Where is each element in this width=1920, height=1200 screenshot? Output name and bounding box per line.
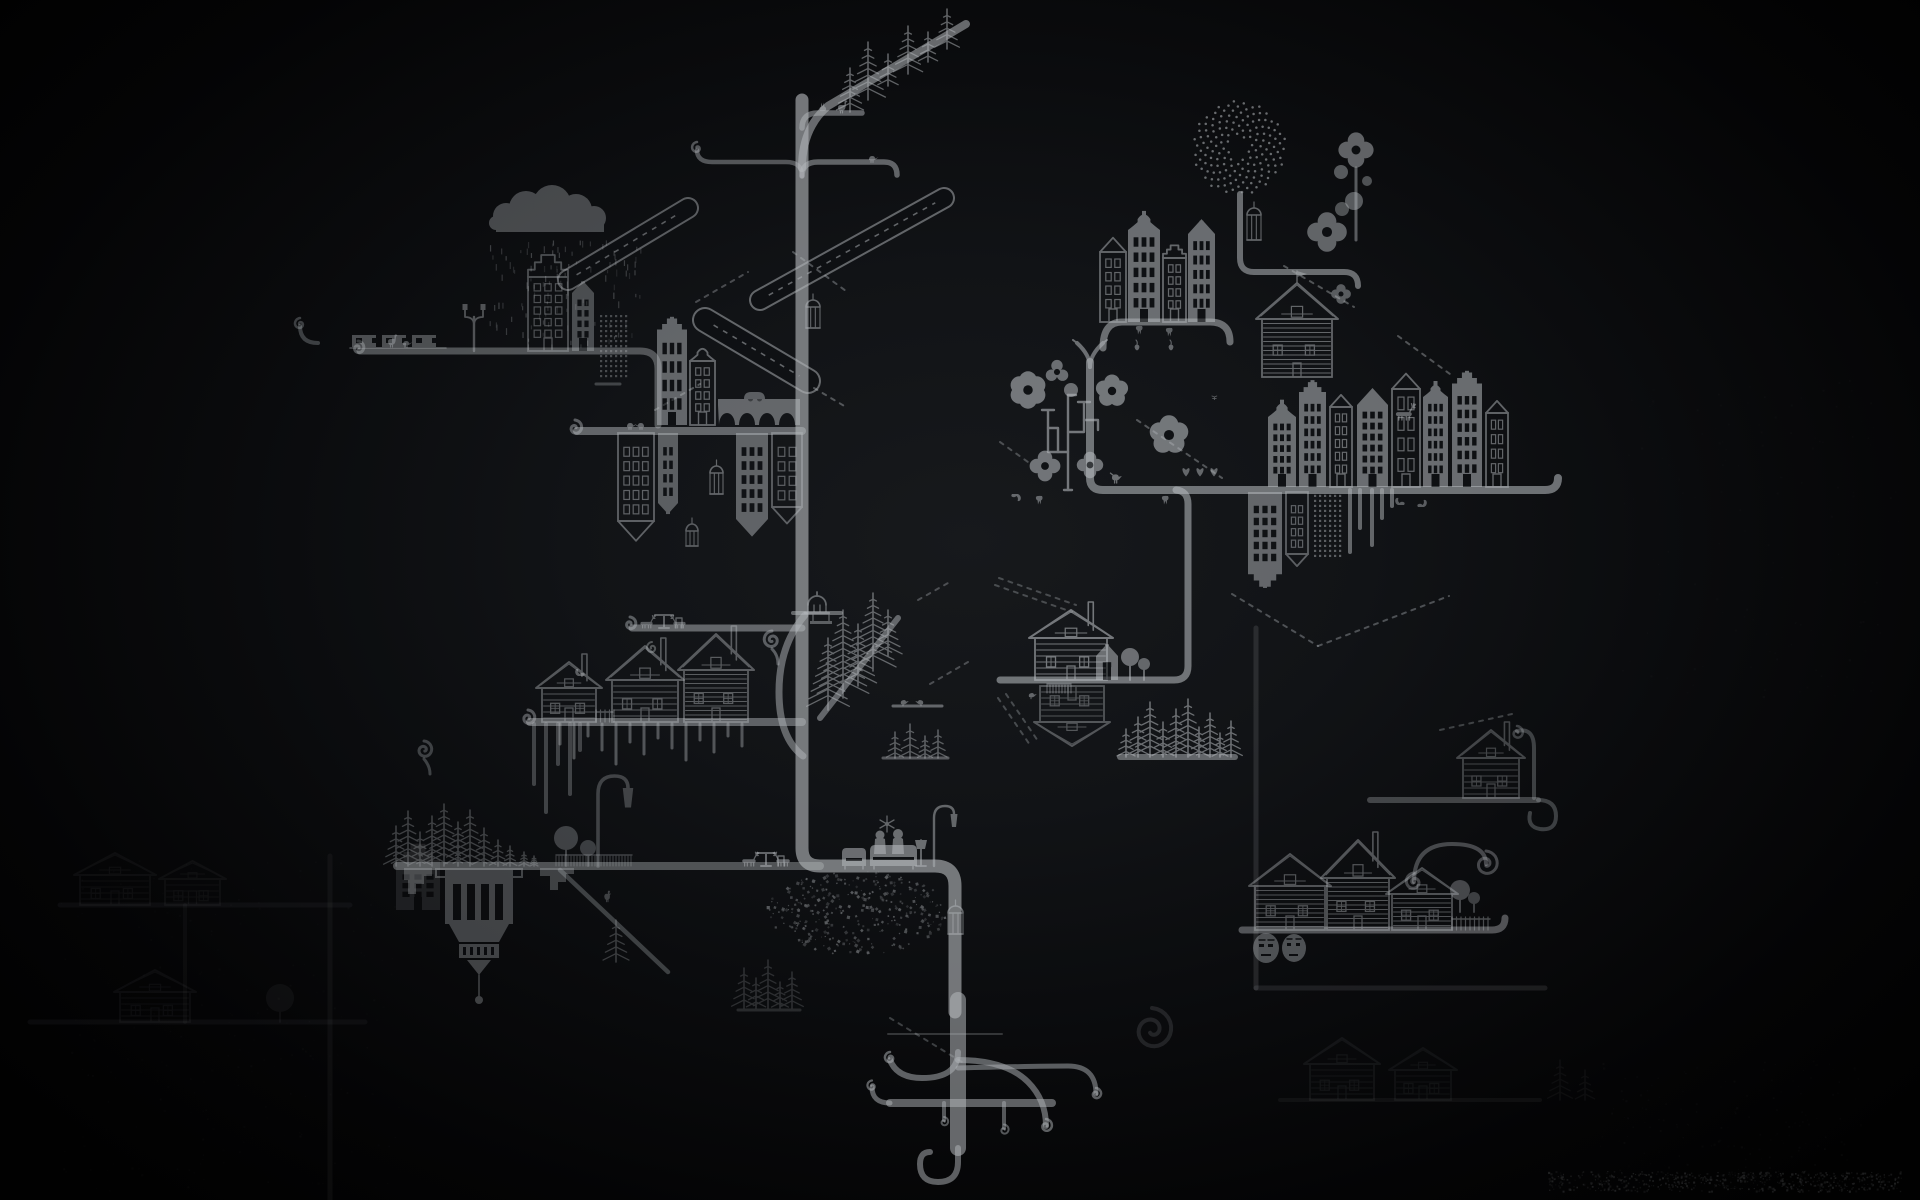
critter <box>604 891 611 902</box>
capsule-road <box>705 320 808 381</box>
flower <box>1338 132 1373 167</box>
pine <box>603 920 629 962</box>
path <box>697 150 802 176</box>
tall-canal-house <box>1486 401 1508 487</box>
pines <box>887 724 948 758</box>
dash <box>995 585 1072 612</box>
roundtree <box>1335 202 1349 216</box>
flower <box>1077 452 1103 478</box>
wallpaper-artwork <box>0 0 1920 1200</box>
chalet <box>536 654 602 722</box>
scroll <box>1414 844 1486 882</box>
dash <box>1318 596 1449 646</box>
flower <box>1307 212 1347 252</box>
critter <box>1135 340 1140 350</box>
rain-building <box>572 281 594 351</box>
roundtree <box>1450 880 1470 912</box>
bg-house <box>159 861 226 905</box>
bg-pines <box>1548 1060 1595 1100</box>
rain-cloud <box>489 185 606 232</box>
cloud-branch <box>360 351 658 425</box>
critter <box>1417 500 1426 507</box>
log-cabin <box>1256 271 1338 377</box>
spiral <box>419 741 432 756</box>
critter <box>1169 340 1174 350</box>
roundtree <box>1334 165 1348 179</box>
train <box>350 335 446 348</box>
lamppost <box>463 304 486 351</box>
branch-322 <box>1103 322 1230 348</box>
dotted-tower <box>600 315 627 377</box>
bg-texture <box>1600 1060 1862 1180</box>
capsule-road <box>760 198 944 300</box>
dash <box>1440 714 1512 730</box>
street-lamp <box>598 776 633 866</box>
critter <box>1136 326 1143 335</box>
path <box>1529 800 1556 829</box>
tall-canal-house <box>1452 371 1482 487</box>
dash <box>814 388 846 407</box>
path <box>300 326 318 343</box>
path <box>424 759 430 774</box>
canal-house <box>1163 245 1186 322</box>
watermark-smudge <box>1548 1171 1902 1193</box>
canal-house <box>1188 219 1215 322</box>
branch-ysplit <box>1073 340 1107 367</box>
aqueduct <box>718 399 800 425</box>
bg-house <box>1389 1048 1457 1100</box>
tall-canal-house <box>1268 400 1296 487</box>
dash <box>930 662 968 684</box>
tall-canal-house <box>1357 388 1388 487</box>
reflected-house <box>1034 686 1110 746</box>
chalet <box>606 638 684 722</box>
br-chalet <box>1386 868 1458 930</box>
tall-canal-house <box>1392 374 1420 487</box>
roundtree <box>1121 648 1139 680</box>
inverted-building <box>1286 492 1308 566</box>
dandelion-orb <box>1193 100 1286 193</box>
br-chalet <box>1249 854 1331 930</box>
island-pines <box>384 804 538 866</box>
dash <box>999 578 1076 605</box>
right-pine-forest <box>1117 699 1242 757</box>
path <box>802 162 897 176</box>
tall-canal-house <box>1299 380 1326 487</box>
island-diagonal <box>560 870 668 972</box>
chalet <box>678 626 754 722</box>
flower <box>1030 451 1061 482</box>
tall-canal-house <box>1423 381 1448 487</box>
drips <box>560 724 742 764</box>
rain-building <box>528 255 568 351</box>
critter <box>1110 473 1121 483</box>
critter <box>1212 396 1217 400</box>
dash <box>1000 442 1028 462</box>
roundtree <box>1064 383 1078 397</box>
faint-spiral <box>1139 1008 1172 1046</box>
canal-house <box>1100 238 1126 322</box>
birdcage <box>1247 202 1261 240</box>
hanging-building <box>658 433 678 514</box>
canal-house <box>657 317 687 425</box>
path <box>1000 490 1188 680</box>
street-lamp <box>934 806 958 866</box>
canal-house <box>690 349 715 425</box>
armchair <box>842 848 866 869</box>
critter <box>1166 328 1173 337</box>
flower <box>1011 371 1046 408</box>
bg-texture <box>60 860 399 1191</box>
tall-canal-house <box>1330 395 1352 487</box>
bg-tree <box>266 984 294 1022</box>
annex <box>1096 644 1118 680</box>
spiral <box>764 631 777 647</box>
flower <box>1150 415 1189 453</box>
critter <box>1162 496 1169 505</box>
dash <box>918 583 948 600</box>
hanging-building <box>618 433 654 541</box>
critter <box>1036 496 1043 505</box>
inverted-dotted-building <box>1314 495 1341 557</box>
moss-blob <box>767 871 947 955</box>
tree-of-scenes-illustration <box>0 0 1920 1200</box>
dash <box>696 272 748 302</box>
pines <box>732 960 804 1008</box>
path <box>772 649 778 664</box>
inverted-theater <box>435 868 523 1004</box>
br-chalet <box>1321 832 1395 930</box>
birdcage <box>710 460 723 494</box>
snowflake <box>880 816 894 832</box>
critter <box>1011 494 1020 501</box>
drips <box>1350 490 1392 552</box>
roundtree <box>1362 176 1372 186</box>
flower <box>1046 360 1068 381</box>
bg-house <box>74 853 156 905</box>
path <box>872 1087 890 1103</box>
canal-house <box>1128 211 1160 322</box>
center-pines <box>807 593 902 710</box>
inverted-building <box>1248 492 1282 588</box>
gazebo <box>805 592 829 613</box>
critter <box>1029 693 1037 699</box>
roundtree <box>1468 892 1480 912</box>
bg-house <box>1304 1038 1380 1100</box>
flower <box>1096 375 1128 406</box>
birdcage <box>686 518 698 546</box>
dash <box>1232 594 1318 646</box>
hearts <box>1182 468 1217 476</box>
pixel-faces <box>1253 933 1306 963</box>
hanging-bench <box>810 615 832 624</box>
critter <box>1395 498 1404 505</box>
bg-texture <box>1622 380 1899 698</box>
dash <box>1398 336 1450 374</box>
path <box>890 1052 958 1078</box>
flower <box>1331 284 1351 304</box>
hanging-building <box>736 433 768 537</box>
